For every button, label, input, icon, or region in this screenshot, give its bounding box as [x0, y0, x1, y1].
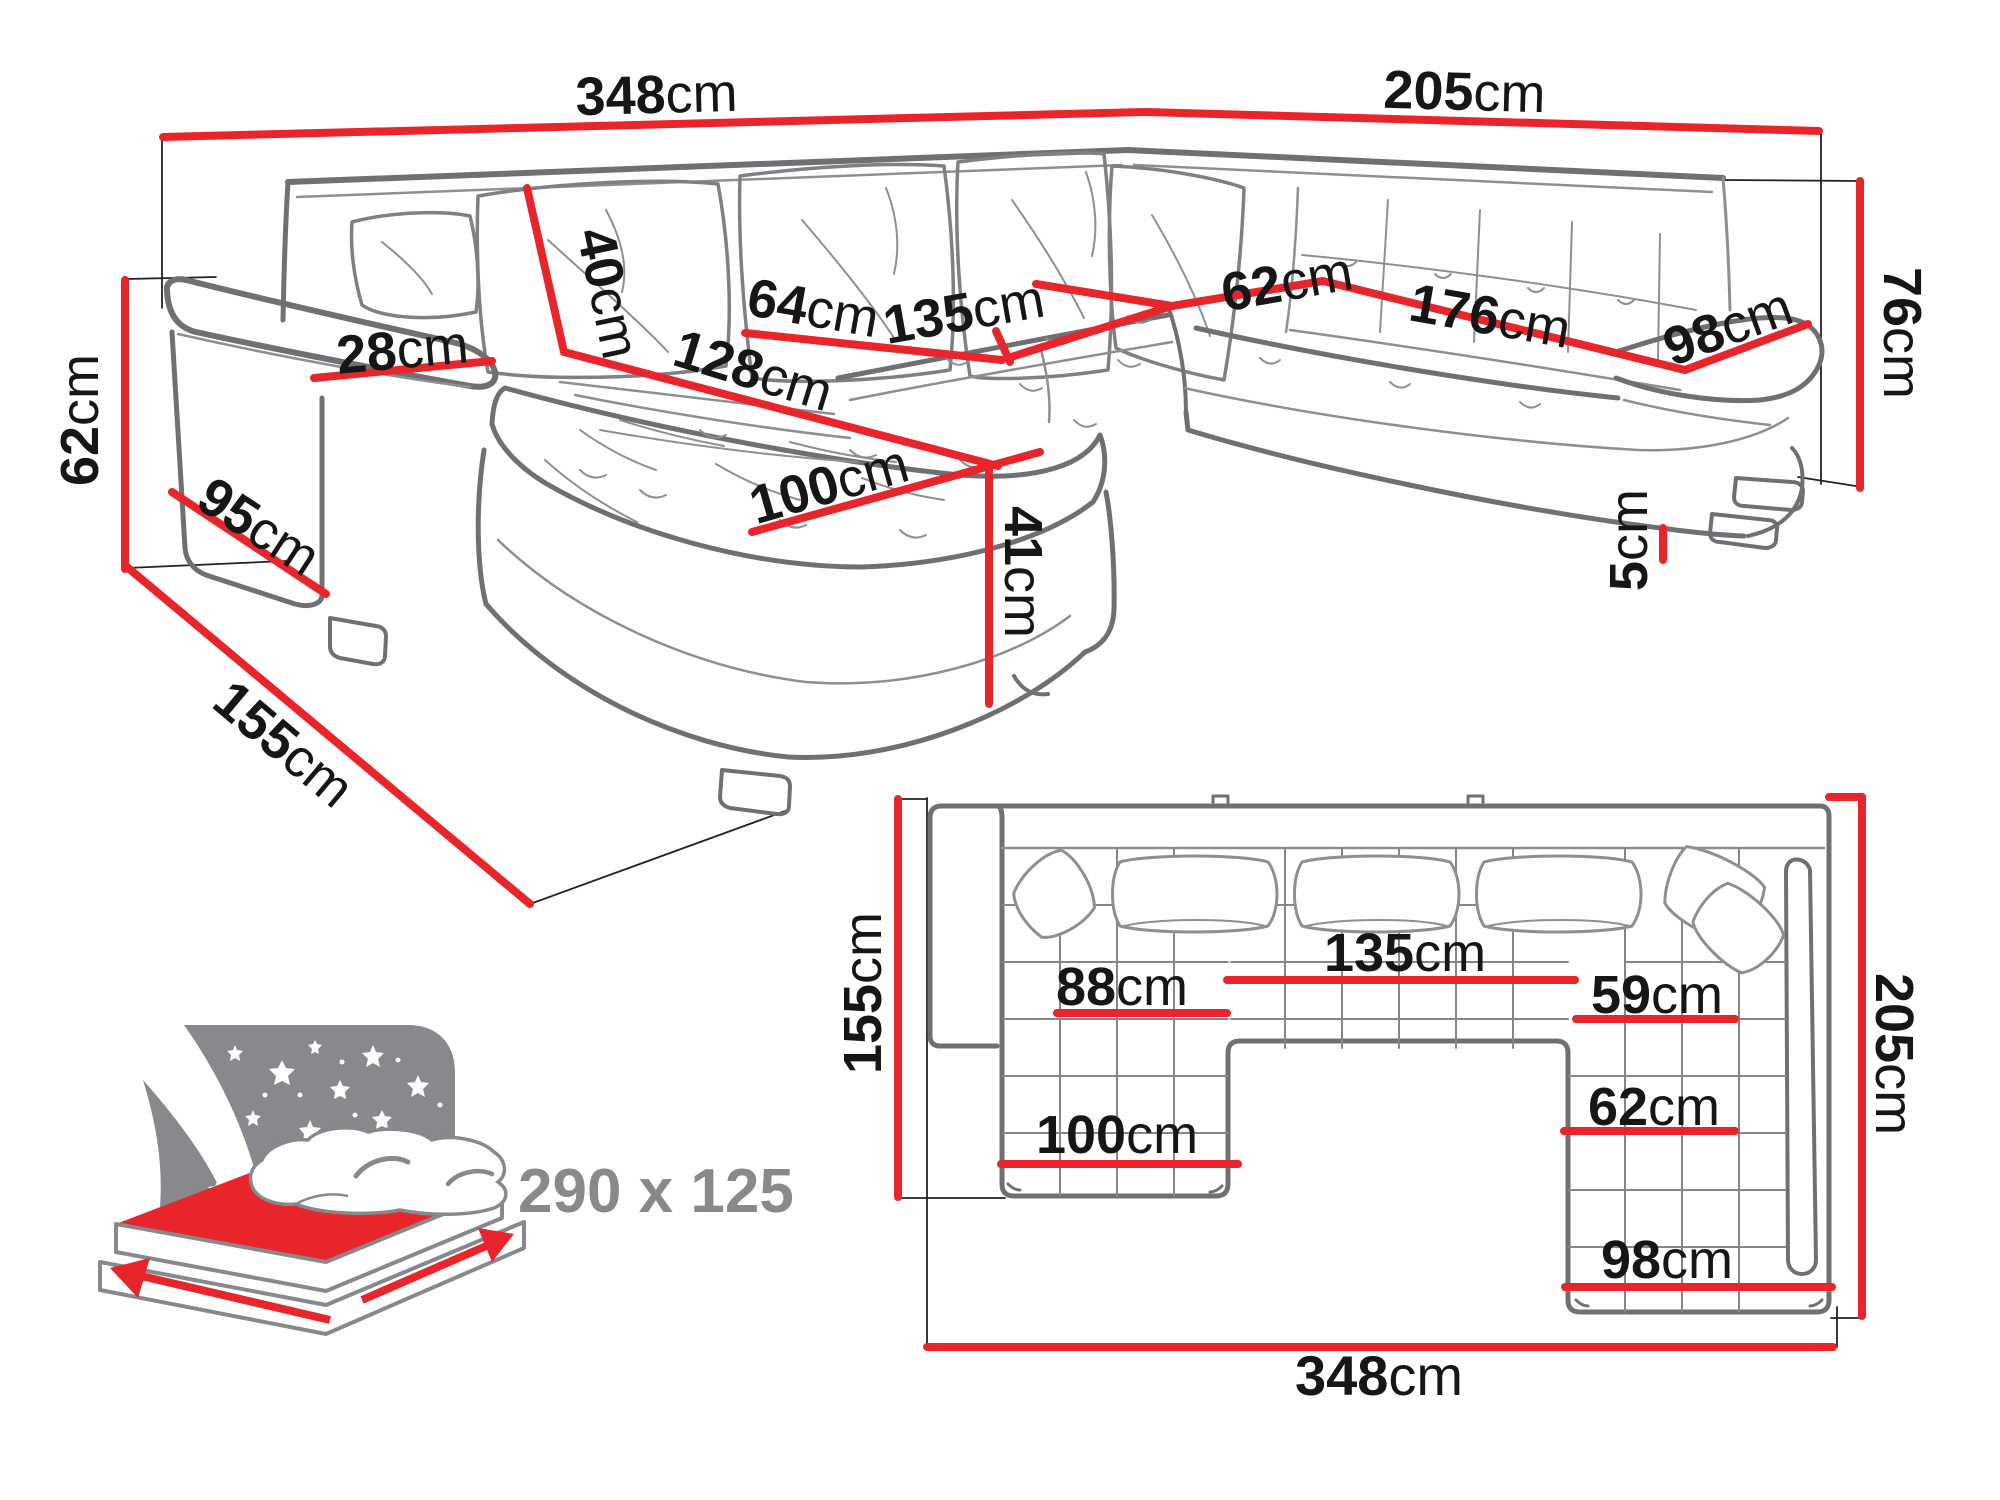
svg-text:62cm: 62cm [1588, 1077, 1720, 1137]
svg-text:41cm: 41cm [993, 506, 1053, 638]
svg-text:62cm: 62cm [50, 354, 110, 486]
svg-text:290 x 125: 290 x 125 [518, 1157, 794, 1226]
svg-text:205cm: 205cm [1383, 60, 1547, 125]
svg-text:348cm: 348cm [575, 63, 739, 127]
svg-text:205cm: 205cm [1864, 973, 1924, 1135]
svg-text:28cm: 28cm [334, 314, 471, 385]
svg-text:135cm: 135cm [1324, 923, 1486, 983]
svg-text:98cm: 98cm [1601, 1230, 1733, 1290]
svg-text:155cm: 155cm [833, 912, 893, 1074]
svg-text:88cm: 88cm [1056, 957, 1188, 1017]
svg-text:100cm: 100cm [1036, 1105, 1198, 1165]
svg-text:348cm: 348cm [1295, 1344, 1463, 1407]
svg-text:59cm: 59cm [1591, 965, 1723, 1025]
svg-text:76cm: 76cm [1872, 267, 1932, 399]
svg-text:5cm: 5cm [1599, 489, 1659, 591]
